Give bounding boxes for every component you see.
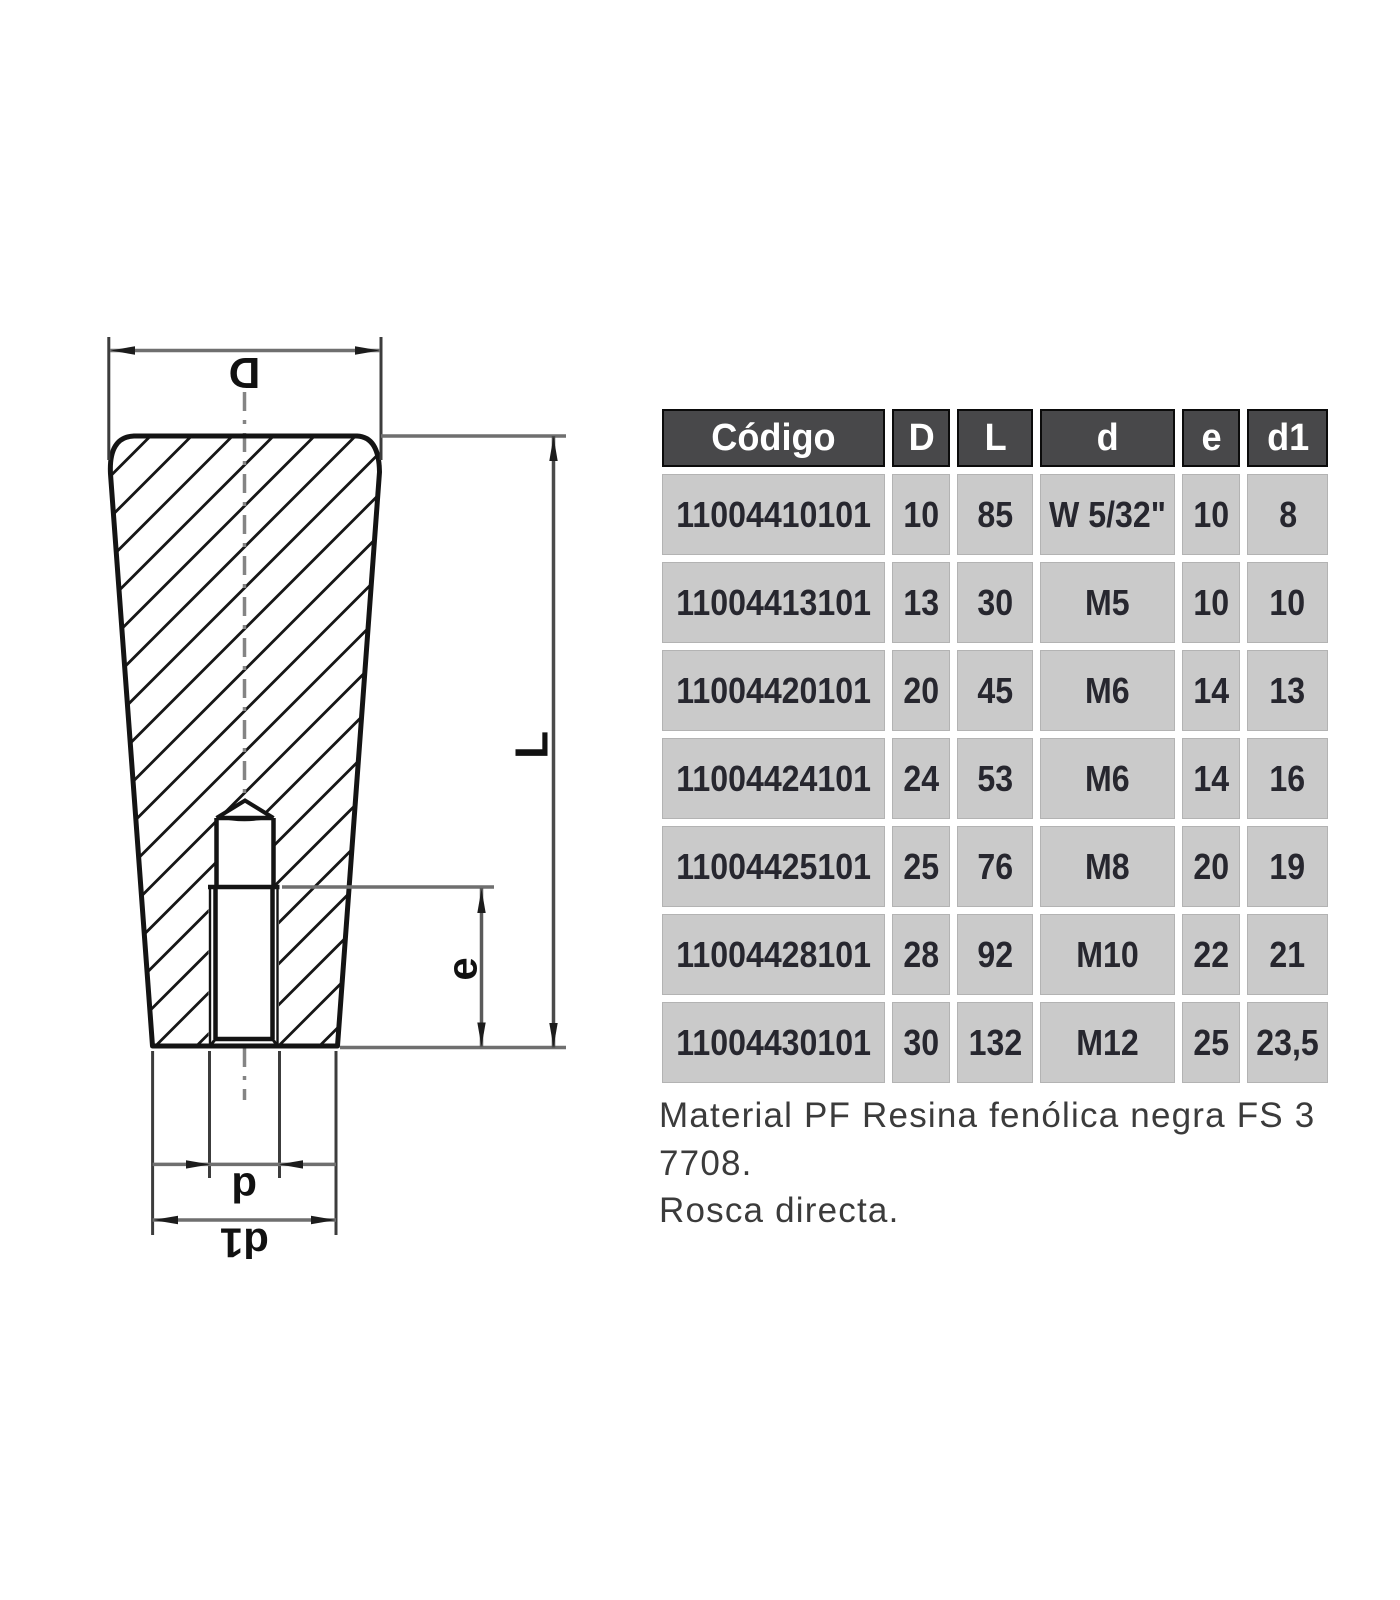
svg-text:e: e <box>439 957 486 980</box>
svg-text:L: L <box>506 731 558 759</box>
svg-text:d1: d1 <box>220 1220 269 1267</box>
svg-text:D: D <box>229 348 261 397</box>
svg-text:d: d <box>231 1164 257 1211</box>
